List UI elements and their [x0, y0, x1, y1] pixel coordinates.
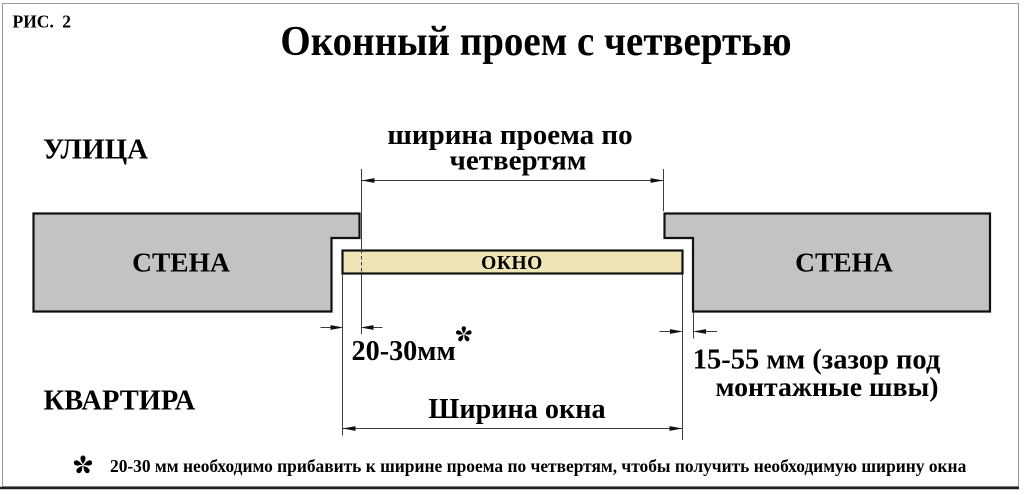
svg-text:РИС.: РИС. [13, 11, 54, 31]
svg-text:Ширина окна: Ширина окна [428, 394, 605, 425]
svg-text:УЛИЦА: УЛИЦА [43, 134, 148, 166]
svg-text:2: 2 [62, 11, 71, 31]
svg-text:СТЕНА: СТЕНА [132, 247, 230, 278]
svg-text:КВАРТИРА: КВАРТИРА [44, 386, 196, 417]
svg-text:15-55 мм (зазор под: 15-55 мм (зазор под [693, 345, 941, 376]
svg-text:ОКНО: ОКНО [481, 253, 543, 274]
svg-text:монтажные швы): монтажные швы) [716, 372, 939, 403]
svg-text:20-30мм: 20-30мм [352, 336, 456, 367]
svg-text:Оконный проем с четвертью: Оконный проем с четвертью [280, 18, 791, 65]
svg-text:20-30 мм необходимо прибавить: 20-30 мм необходимо прибавить к ширине п… [110, 456, 967, 476]
svg-text:СТЕНА: СТЕНА [795, 247, 893, 278]
svg-text:четвертям: четвертям [449, 144, 586, 176]
